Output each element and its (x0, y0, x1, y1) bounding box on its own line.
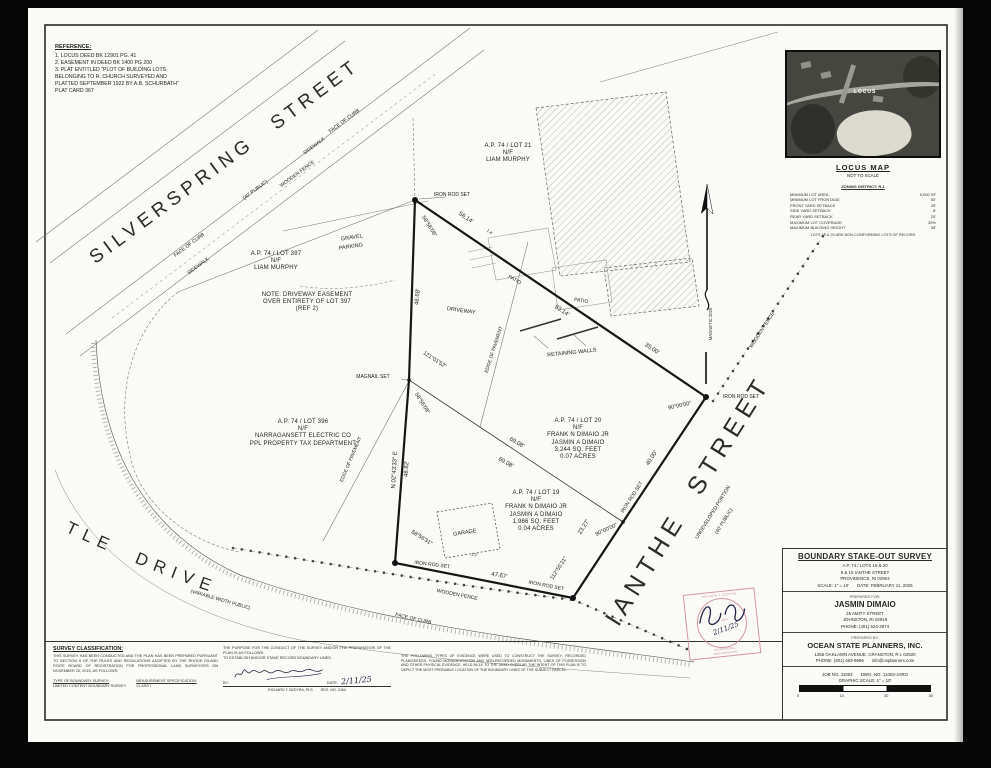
parcel-line: PPL PROPERTY TAX DEPARTMENT (223, 441, 383, 448)
dim-47-67: 47.67' (491, 572, 508, 581)
title-block-firm: PREPARED BY: OCEAN STATE PLANNERS, INC. … (783, 633, 947, 668)
offset-1-4: 1.4' (486, 228, 494, 236)
patio-label: PATIO (574, 297, 589, 305)
street-silverspring-sub: (40' PUBLIC) (242, 179, 269, 201)
zoning-title: ZONING DISTRICT: R-1 (790, 184, 936, 190)
edge-of-pavement-label: EDGE OF PAVEMENT (484, 326, 505, 374)
parcel-line: N/F (216, 258, 336, 265)
sidewalk-label: SIDEWALK (302, 136, 327, 156)
scale-tick: 0 (797, 693, 799, 698)
measurement-spec: MEASUREMENT SPECIFICATION: CLASS I (136, 679, 196, 689)
dim-48-82: 48.82' (404, 461, 411, 477)
locus-aerial-photo: LOCUS (785, 50, 941, 158)
iron-rod-set-label: IRON ROD SET (723, 394, 759, 400)
locus-map-title: LOCUS MAP (783, 163, 943, 172)
dim-46-68: 46.68' (414, 289, 421, 306)
prepared-by-label: PREPARED BY: (785, 636, 945, 640)
scanned-survey-plat: SILVERSPRING STREET IANTHE STREET ROYAL … (0, 0, 991, 768)
survey-classification-block: SURVEY CLASSIFICATION: THIS SURVEY HAS B… (53, 646, 218, 689)
graphic-scale-ticks: 0 10 20 30 (797, 693, 933, 698)
measurement-spec-value: CLASS I (136, 684, 196, 689)
parcel-label-lot20: A.P. 74 / LOT 20 N/F FRANK N DIMAIO JR J… (518, 418, 638, 461)
parcel-line: 3,244 SQ. FEET (518, 447, 638, 454)
parcel-line: NARRAGANSETT ELECTRIC CO (223, 433, 383, 440)
zoning-note: LOTS 19 & 20 ARE NON-CONFORMING LOTS OF … (790, 233, 936, 239)
reference-line: 1. LOCUS DEED BK 12901 PG. 41 (55, 53, 265, 60)
easement-note: NOTE: DRIVEWAY EASEMENT OVER ENTIRETY OF… (237, 292, 377, 314)
dim-40-00: 40.00' (645, 450, 659, 467)
aerial-building (800, 61, 811, 69)
project-lot: A.P. 74 / LOTS 19 & 20 (785, 563, 945, 568)
parcel-line: JASMIN A DIMAIO (476, 512, 596, 519)
driveway-label: DRIVEWAY (446, 306, 476, 316)
reference-line: BELONGING TO R. CHURCH SURVEYED AND (55, 74, 265, 81)
parcel-line: 1,966 SQ. FEET (476, 519, 596, 526)
wooden-fence-label: WOODEN FENCE (748, 311, 776, 350)
parcel-line: LIAM MURPHY (216, 265, 336, 272)
dim-35-00: 35.00' (643, 342, 660, 356)
graphic-scale-label: GRAPHIC SCALE: 1" = 10' (785, 678, 945, 683)
parcel-line: N/F (518, 425, 638, 432)
reference-line: PLAT CARD 367 (55, 88, 265, 95)
gravel-parking-label: PARKING (338, 242, 363, 251)
classification-title: SURVEY CLASSIFICATION: (53, 646, 218, 652)
scale-tick: 10 (839, 693, 843, 698)
parcel-line: 0.07 ACRES (518, 454, 638, 461)
parcel-line: JASMIN A DIMAIO (518, 440, 638, 447)
angle-121-01-52: 121°01'52" (422, 350, 448, 370)
aerial-building (820, 71, 831, 79)
client-address: 25 AMITY STREET (785, 611, 945, 616)
magnail-set-label: MAGNAIL SET (356, 374, 389, 380)
gravel-parking-label: GRAVEL (341, 234, 364, 243)
magnetic-north-label: MAGNETIC 2025 (708, 307, 713, 340)
dim-69-08: 69.08' (497, 456, 514, 469)
stamp-initials-ink (683, 587, 762, 660)
purpose-paragraph: THE PURPOSE FOR THE CONDUCT OF THE SURVE… (223, 646, 391, 656)
firm-address: 1255 OAKLAWN AVENUE, CRANSTON, R.I. 0292… (785, 652, 945, 657)
reference-notes: REFERENCE: 1. LOCUS DEED BK 12901 PG. 41… (55, 44, 265, 95)
surveyor-name-line: RICHARD T. BZDYRA, PLS REG. NO. 2454 (223, 688, 391, 692)
client-name: JASMIN DIMAIO (785, 600, 945, 609)
reference-title: REFERENCE: (55, 44, 265, 51)
title-block-client: PREPARED FOR: JASMIN DIMAIO 25 AMITY STR… (783, 592, 947, 633)
locus-map-block: LOCUS LOCUS MAP NOT TO SCALE ZONING DIST… (783, 50, 943, 238)
drawing-number: DWG. NO. 11002-JARO (861, 672, 908, 677)
angle-58-56-08: 58°56'08" (420, 215, 438, 238)
angle-112-55-21: 112°55'21" (550, 556, 569, 581)
zoning-row: MAXIMUM BUILDING HEIGHT35' (790, 225, 936, 231)
evidence-paragraph: THE FOLLOWING TYPES OF EVIDENCE WERE USE… (401, 654, 586, 673)
client-city: JOHNSTON, RI 02919 (785, 617, 945, 622)
firm-phone: PHONE: (401) 463-9696 (816, 658, 864, 663)
bearing-n024333e: N 02°43'33" E (391, 451, 399, 489)
parcel-line: N/F (448, 150, 568, 157)
royal-little-curbs (55, 340, 694, 678)
retaining-walls (520, 319, 598, 348)
prepared-for-label: PREPARED FOR: (785, 595, 945, 599)
surveyor-signature (232, 663, 324, 685)
locus-marker: LOCUS (854, 89, 877, 95)
title-block: BOUNDARY STAKE-OUT SURVEY A.P. 74 / LOTS… (782, 548, 947, 720)
building-lot21 (536, 92, 699, 316)
angle-58-56-31: 58°56'31" (410, 529, 433, 547)
face-of-curb-label: FACE OF CURB (328, 107, 362, 134)
firm-name: OCEAN STATE PLANNERS, INC. (785, 641, 945, 650)
drawing-title: BOUNDARY STAKE-OUT SURVEY (785, 552, 945, 561)
parcel-line: A.P. 74 / LOT 20 (518, 418, 638, 425)
parcel-line: LIAM MURPHY (448, 157, 568, 164)
parcel-line: N/F (223, 426, 383, 433)
title-block-job: JOB NO. 11002 DWG. NO. 11002-JARO GRAPHI… (783, 667, 947, 701)
reference-line: PLATTED SEPTEMBER 1922 BY A.B. SCHURBATH… (55, 81, 265, 88)
measurement-spec-label: MEASUREMENT SPECIFICATION: (136, 679, 196, 684)
purpose-value: TO ESTABLISH AND/OR STAKE RECORD BOUNDAR… (223, 656, 391, 661)
aerial-building (873, 95, 884, 102)
boundary-type: TYPE OF BOUNDARY SURVEY: LIMITED CONTENT… (53, 679, 126, 689)
reference-line: 2. EASEMENT IN DEED BK 1400 PG 200 (55, 60, 265, 67)
face-of-curb-label: FACE OF CURB (395, 612, 433, 626)
scale-tick: 30 (929, 693, 933, 698)
wooden-fence-label: WOODEN FENCE (279, 159, 316, 189)
dim-56-14: 56.14' (457, 211, 474, 225)
certification-strip: SURVEY CLASSIFICATION: THIS SURVEY HAS B… (45, 641, 782, 721)
graphic-scale-bar (799, 685, 931, 692)
reference-line: 3. PLAT ENTITLED "PLOT OF BUILDING LOTS (55, 67, 265, 74)
face-of-curb-label: FACE OF CURB (173, 231, 207, 258)
zoning-table: ZONING DISTRICT: R-1 MINIMUM LOT AREA5,0… (790, 184, 936, 238)
surveyor-stamp: RICHARD T. BZDYRA No. 2454 PROFESSIONAL … (683, 587, 762, 660)
drawing-date: DATE: FEBRUARY 11, 2025 (857, 583, 913, 588)
project-city: PROVIDENCE, RI 02904 (785, 576, 945, 581)
title-block-project: BOUNDARY STAKE-OUT SURVEY A.P. 74 / LOTS… (783, 549, 947, 592)
note-line: OVER ENTIRETY OF LOT 397 (237, 299, 377, 306)
evidence-notes-block: THE FOLLOWING TYPES OF EVIDENCE WERE USE… (401, 654, 586, 673)
signature-row: BY: DATE: 2/11/25 (223, 663, 391, 687)
parcel-label-lot19: A.P. 74 / LOT 19 N/F FRANK N DIMAIO JR J… (476, 490, 596, 533)
drawing-scale: SCALE: 1" = 10' (817, 583, 849, 588)
note-line: NOTE: DRIVEWAY EASEMENT (237, 292, 377, 299)
retaining-walls-label: RETAINING WALLS (547, 347, 597, 358)
parcel-line: A.P. 74 / LOT 21 (448, 143, 568, 150)
street-royal-sub: (VARIABLE WIDTH PUBLIC) (190, 589, 252, 612)
parcel-line: 0.04 ACRES (476, 526, 596, 533)
parcel-label-lot21: A.P. 74 / LOT 21 N/F LIAM MURPHY (448, 143, 568, 165)
classification-paragraph: THIS SURVEY HAS BEEN CONDUCTED AND THE P… (53, 654, 218, 674)
parcel-line: N/F (476, 497, 596, 504)
dim-93-14: 93.14' (553, 304, 570, 318)
note-line: (REF 2) (237, 306, 377, 313)
purpose-signature-block: THE PURPOSE FOR THE CONDUCT OF THE SURVE… (223, 646, 391, 692)
date-label: DATE: (327, 681, 338, 685)
north-arrow (701, 184, 713, 384)
job-number: JOB NO. 11002 (822, 672, 853, 677)
locus-map-subtitle: NOT TO SCALE (783, 173, 943, 178)
client-phone: PHONE: (401) 524-2974 (785, 624, 945, 629)
parcel-label-lot397: A.P. 74 / LOT 397 N/F LIAM MURPHY (216, 251, 336, 273)
scale-tick: 20 (884, 693, 888, 698)
garage-label: GARAGE (453, 528, 478, 538)
surveyor-name: RICHARD T. BZDYRA, PLS (268, 688, 312, 692)
firm-email: info@osplanners.com (872, 658, 915, 663)
wooden-fence-label: WOODEN FENCE (436, 588, 478, 602)
parcel-line: A.P. 74 / LOT 19 (476, 490, 596, 497)
zoning-key: MAXIMUM BUILDING HEIGHT (790, 225, 846, 231)
boundary-type-value: LIMITED CONTENT BOUNDARY SURVEY (53, 684, 126, 689)
surveyor-registration: REG. NO. 2454 (321, 688, 346, 692)
parcel-line: FRANK N DIMAIO JR (518, 432, 638, 439)
offset-1-3: 1.3' (471, 552, 478, 558)
iron-rod-set-label: IRON ROD SET (434, 192, 470, 198)
by-label: BY: (223, 681, 229, 685)
parcel-label-lot396: A.P. 74 / LOT 396 N/F NARRAGANSETT ELECT… (223, 419, 383, 448)
zoning-value: 35' (931, 225, 936, 231)
parcel-line: A.P. 74 / LOT 396 (223, 419, 383, 426)
angle-58-56-08: 58°56'08" (413, 392, 431, 415)
parcel-line: A.P. 74 / LOT 397 (216, 251, 336, 258)
parcel-line: FRANK N DIMAIO JR (476, 504, 596, 511)
angle-90-00-00: 90°00'00" (668, 401, 692, 412)
project-address: 9 & 15 IANTHE STREET (785, 570, 945, 575)
handwritten-date: 2/11/25 (340, 674, 372, 686)
